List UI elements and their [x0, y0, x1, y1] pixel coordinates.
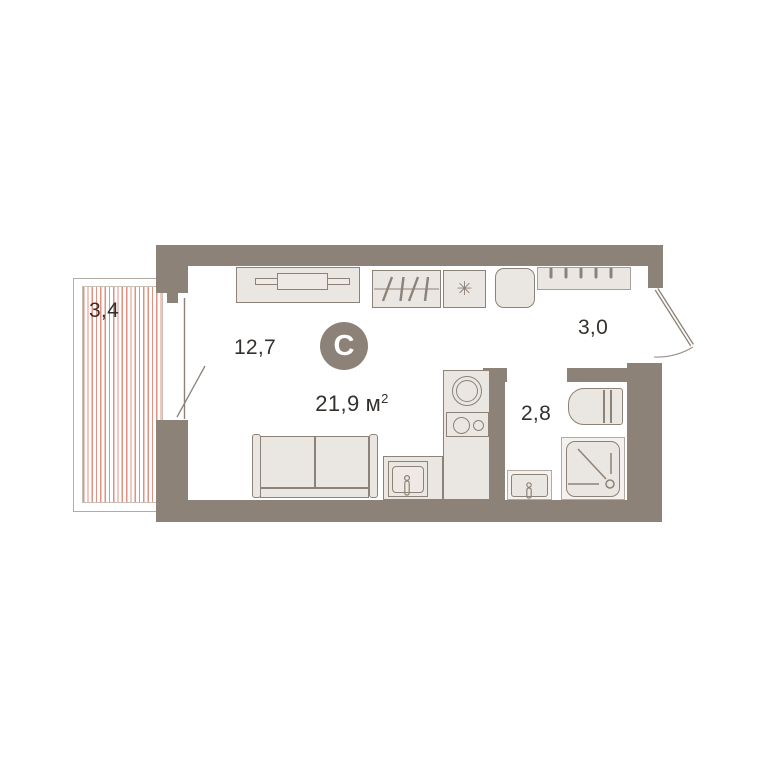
- hallway-area-label: 3,0: [565, 316, 621, 340]
- shower-tray: [566, 441, 620, 497]
- wall-balcony-jamb: [167, 293, 178, 303]
- sofa-cushion-right: [315, 436, 369, 488]
- wall-bathroom-vertical: [490, 382, 505, 500]
- washing-machine-slot: ✳: [443, 270, 486, 308]
- toilet-cistern-line: [603, 390, 605, 423]
- total-area-superscript: 2: [381, 391, 389, 406]
- studio-badge: С: [320, 322, 368, 370]
- total-area-value: 21,9: [315, 391, 359, 416]
- toilet: [568, 388, 623, 425]
- bathroom-area-label: 2,8: [510, 402, 562, 426]
- total-area-label: 21,9м2: [282, 391, 422, 417]
- wall-top: [156, 245, 663, 266]
- floorplan-canvas: ✳: [0, 0, 768, 768]
- entrance-door: [654, 288, 693, 357]
- toilet-cistern-line: [610, 390, 612, 423]
- coat-rack: [537, 267, 631, 290]
- balcony-door-leaf: [177, 366, 205, 417]
- fridge: [495, 268, 535, 308]
- wall-bathroom-horizontal: [567, 368, 627, 382]
- sofa-armrest-right: [369, 434, 378, 498]
- door-swing-arc: [654, 347, 693, 357]
- total-area-unit: м: [366, 391, 382, 416]
- wall-left-upper: [156, 245, 188, 293]
- sofa-cushion-left: [260, 436, 315, 488]
- wall-right: [627, 363, 662, 522]
- sofa-front-edge: [260, 488, 369, 498]
- balcony-area-label: 3,4: [80, 299, 128, 323]
- burner-small-icon: [473, 420, 484, 431]
- oven-inner-ring-icon: [456, 380, 478, 402]
- burner-large-icon: [453, 417, 470, 434]
- wall-entry-post: [648, 266, 663, 288]
- wall-bottom: [156, 500, 662, 522]
- desk-console: [277, 273, 328, 290]
- wardrobe: [372, 270, 441, 308]
- asterisk-icon: ✳: [457, 278, 473, 301]
- washbasin: [511, 474, 548, 497]
- kitchen-sink-basin: [392, 466, 424, 493]
- living-room-area-label: 12,7: [225, 336, 285, 360]
